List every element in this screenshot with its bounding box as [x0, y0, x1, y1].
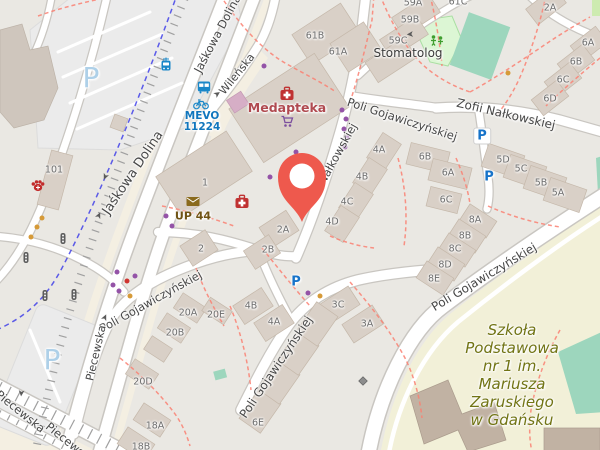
poi-dot-purple	[306, 291, 311, 296]
poi-dot-purple	[164, 214, 169, 219]
housenumber-label: 59A	[404, 0, 423, 8]
housenumber-label: 59C	[389, 36, 408, 46]
poi-dot-purple	[170, 224, 175, 229]
housenumber-label: 6B	[419, 152, 432, 162]
housenumber-label: 4B	[245, 301, 258, 311]
poi-dot-orange	[506, 71, 511, 76]
school-name-label: SzkołaPodstawowanr 1 im.MariuszaZaruskie…	[465, 321, 559, 429]
housenumber-label: 18A	[146, 421, 165, 431]
housenumber-label: 8B	[459, 231, 472, 241]
housenumber-label: 61C	[449, 0, 468, 7]
school-name-line: w Gdańsku	[465, 411, 559, 429]
mevo-station-label: MEVO11224	[184, 111, 221, 133]
school-name-line: nr 1 im.	[465, 357, 559, 375]
poi-dot-purple	[111, 283, 116, 288]
medapteka-label: Medapteka	[248, 102, 326, 115]
traffic-signal-icon	[42, 287, 48, 306]
up44-label: UP 44	[175, 211, 211, 222]
mevo-line: 11224	[184, 122, 221, 133]
housenumber-label: 8A	[469, 215, 482, 225]
housenumber-label: 4C	[341, 197, 354, 207]
poi-dot-orange	[318, 294, 323, 299]
housenumber-label: 6A	[442, 168, 455, 178]
traffic-signal-icon	[71, 286, 77, 305]
housenumber-label: 5D	[496, 155, 509, 165]
map-canvas[interactable]: ➤➤➤➤➤➤ Jaśkowa DolinaJaśkowa DolinaWileń…	[0, 0, 600, 450]
poi-dot-orange	[40, 216, 45, 221]
poi-dot-purple	[117, 289, 122, 294]
housenumber-label: 6C	[557, 75, 570, 85]
parking-area-label: P	[44, 346, 61, 374]
housenumber-label: 3C	[332, 300, 345, 310]
housenumber-label: 4A	[373, 145, 386, 155]
poi-dot-orange	[35, 225, 40, 230]
location-pin[interactable]	[274, 151, 330, 227]
housenumber-label: 8C	[449, 244, 462, 254]
housenumber-label: 2A	[544, 3, 557, 13]
housenumber-label: 20E	[207, 310, 225, 320]
housenumber-label: 6D	[543, 94, 556, 104]
pin-hole	[290, 164, 315, 189]
school-name-line: Zaruskiego	[465, 393, 559, 411]
poi-dot-purple	[115, 270, 120, 275]
gate-icon	[358, 372, 369, 391]
housenumber-label: 3A	[361, 319, 374, 329]
housenumber-label: 20D	[133, 377, 152, 387]
traffic-signal-icon	[23, 249, 29, 268]
housenumber-label: 61B	[306, 31, 325, 41]
housenumber-label: 5C	[515, 164, 528, 174]
housenumber-label: 4B	[356, 172, 369, 182]
housenumber-label: 5B	[535, 178, 548, 188]
oneway-arrow-icon: ➤	[15, 389, 25, 397]
housenumber-label: 6B	[570, 57, 583, 67]
housenumber-label: 5A	[552, 188, 565, 198]
traffic-signal-icon	[60, 230, 66, 249]
housenumber-label: 8D	[438, 260, 451, 270]
school-name-line: Szkoła	[465, 321, 559, 339]
stomatolog-label: Stomatolog	[373, 47, 442, 59]
housenumber-label: 1	[202, 178, 208, 188]
housenumber-label: 4A	[268, 317, 281, 327]
poi-dot-orange	[128, 294, 133, 299]
poi-dot-purple	[133, 274, 138, 279]
housenumber-label: 18B	[132, 442, 151, 450]
supermarket-cart-icon	[281, 113, 294, 132]
housenumber-label: 6A	[582, 38, 595, 48]
parking-sign: P	[473, 128, 491, 145]
veterinary-paw-icon	[31, 178, 46, 197]
school-name-line: Mariusza	[465, 375, 559, 393]
housenumber-label: 59B	[401, 15, 420, 25]
housenumber-label: 20A	[179, 308, 198, 318]
poi-dot-red	[125, 279, 130, 284]
poi-dot-orange	[29, 235, 34, 240]
housenumber-label: 61A	[329, 47, 348, 57]
parking-sign: P	[291, 276, 301, 289]
housenumber-label: 101	[45, 165, 63, 175]
housenumber-label: 2	[198, 244, 204, 254]
housenumber-label: 6E	[252, 418, 264, 428]
housenumber-label: 8E	[428, 274, 440, 284]
poi-dot-purple	[268, 175, 273, 180]
post-envelope-icon	[186, 192, 200, 211]
school-name-line: Podstawowa	[465, 339, 559, 357]
housenumber-label: 2B	[262, 245, 275, 255]
tram-stop-icon	[160, 57, 172, 76]
parking-sign: P	[484, 171, 494, 184]
poi-dot-purple	[340, 108, 345, 113]
poi-dot-purple	[262, 64, 267, 69]
pharmacy-icon	[235, 194, 250, 213]
housenumber-label: 20B	[166, 328, 185, 338]
housenumber-label: 6C	[440, 195, 453, 205]
parking-area-label: P	[83, 64, 100, 92]
